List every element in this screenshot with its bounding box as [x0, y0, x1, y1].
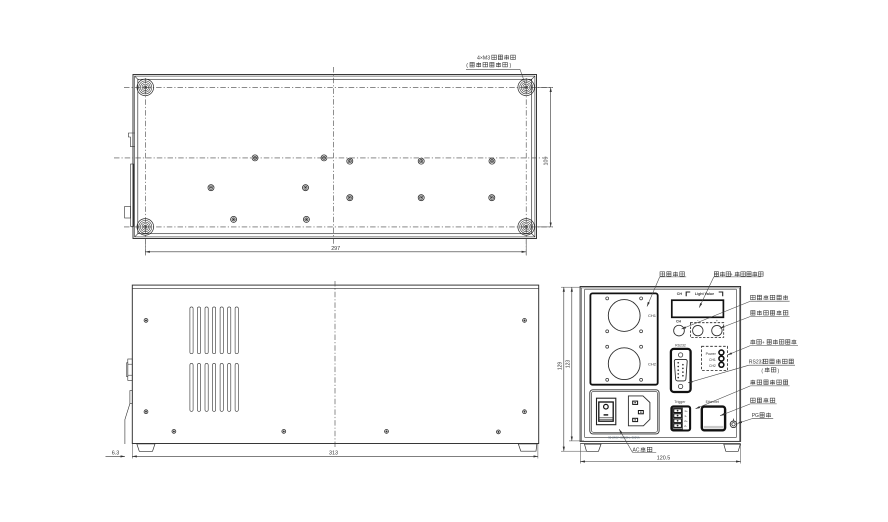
- svg-text:CH: CH: [676, 320, 681, 324]
- svg-text:120.5: 120.5: [657, 456, 671, 462]
- svg-text:CH2: CH2: [709, 364, 716, 368]
- svg-text:Power: Power: [706, 352, 717, 356]
- svg-text:313: 313: [329, 450, 338, 456]
- svg-text:6.3: 6.3: [112, 450, 120, 456]
- svg-text:129: 129: [558, 362, 564, 371]
- svg-text:CH1: CH1: [709, 358, 716, 362]
- svg-text:+: +: [730, 272, 733, 277]
- svg-text:297: 297: [331, 246, 340, 252]
- svg-text:109: 109: [544, 157, 550, 166]
- svg-text:Trigger: Trigger: [674, 400, 686, 404]
- svg-text:2+: 2+: [684, 419, 688, 423]
- svg-text:1-: 1-: [684, 414, 687, 418]
- svg-text:RS232: RS232: [749, 359, 765, 365]
- svg-text:CH: CH: [677, 292, 683, 296]
- svg-text:PG: PG: [752, 413, 759, 419]
- svg-text:(: (: [466, 63, 468, 69]
- svg-text:2-: 2-: [684, 424, 687, 428]
- svg-text:123: 123: [566, 360, 572, 369]
- svg-text:CH2: CH2: [648, 361, 657, 366]
- svg-text:Light Value: Light Value: [695, 292, 714, 296]
- svg-text:RS232: RS232: [675, 343, 686, 347]
- svg-text:CH1: CH1: [648, 313, 657, 318]
- svg-text:AC: AC: [633, 448, 640, 454]
- svg-text:+: +: [762, 340, 765, 345]
- svg-text:): ): [510, 63, 512, 69]
- svg-text:4×M3: 4×M3: [477, 56, 490, 62]
- svg-text:1+: 1+: [684, 409, 688, 413]
